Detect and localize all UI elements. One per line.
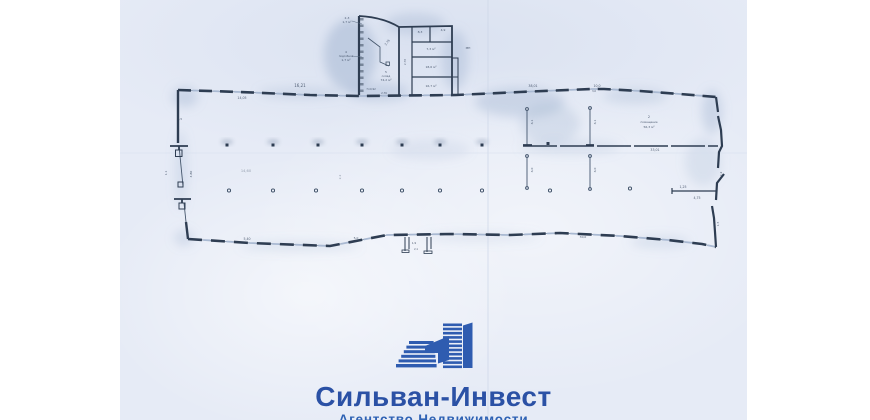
svg-text:38,01: 38,01 (528, 84, 537, 88)
svg-text:16,21: 16,21 (294, 83, 306, 88)
svg-text:4,75: 4,75 (693, 196, 700, 200)
svg-text:4: 4 (345, 50, 347, 54)
company-name: Сильван-Инвест (120, 383, 747, 411)
svg-text:МП: МП (466, 46, 471, 50)
svg-text:1,25: 1,25 (679, 185, 686, 189)
svg-text:2,76: 2,76 (384, 38, 391, 46)
svg-text:6,1: 6,1 (530, 120, 534, 125)
svg-text:1,9: 1,9 (412, 241, 417, 245)
svg-text:1,5: 1,5 (716, 222, 720, 227)
svg-text:2,1: 2,1 (414, 247, 418, 251)
svg-text:7×0,92: 7×0,92 (366, 87, 376, 91)
svg-text:2,2: 2,2 (719, 172, 723, 177)
svg-text:5,0: 5,0 (354, 236, 359, 240)
scan-page: 16,2114,0538,0110,03,02-31,7 м²4подсобно… (0, 0, 870, 420)
svg-text:2,2: 2,2 (338, 175, 342, 180)
svg-text:14,60: 14,60 (241, 169, 252, 173)
svg-text:18,6 м²: 18,6 м² (425, 65, 437, 69)
svg-text:3,0: 3,0 (592, 89, 596, 93)
svg-text:4,9: 4,9 (441, 28, 446, 32)
svg-text:7,3 м²: 7,3 м² (426, 47, 436, 51)
svg-text:4,80: 4,80 (189, 171, 193, 178)
svg-text:6,0: 6,0 (593, 168, 597, 173)
svg-text:4,5: 4,5 (178, 117, 183, 121)
logo: Сильван-Инвест Агентство Недвижимости (120, 322, 747, 420)
svg-text:5,40: 5,40 (243, 237, 250, 241)
logo-buildings-icon (392, 322, 476, 382)
svg-text:6,1: 6,1 (593, 120, 597, 125)
svg-text:8,3: 8,3 (418, 30, 423, 34)
svg-text:2: 2 (648, 115, 650, 119)
svg-text:33,01: 33,01 (650, 148, 659, 152)
svg-text:16,7 м²: 16,7 м² (425, 84, 437, 88)
svg-text:помещение: помещение (640, 120, 657, 124)
company-tagline: Агентство Недвижимости (120, 413, 747, 420)
entrance-vestibule (402, 237, 432, 254)
svg-text:74,2 м²: 74,2 м² (380, 78, 392, 82)
svg-text:1,1: 1,1 (164, 171, 168, 176)
svg-text:2,76: 2,76 (403, 59, 407, 65)
svg-text:6,0: 6,0 (530, 168, 534, 173)
svg-text:14,05: 14,05 (237, 96, 246, 100)
svg-text:30,0: 30,0 (580, 235, 587, 239)
svg-text:1,7 м²: 1,7 м² (342, 20, 352, 24)
scan-shadows (172, 13, 722, 251)
svg-text:1,7 м²: 1,7 м² (341, 58, 351, 62)
svg-text:2,76: 2,76 (381, 91, 387, 95)
svg-text:10,0: 10,0 (593, 84, 600, 88)
exterior-walls (178, 89, 724, 247)
svg-text:56,3 м²: 56,3 м² (643, 125, 655, 129)
